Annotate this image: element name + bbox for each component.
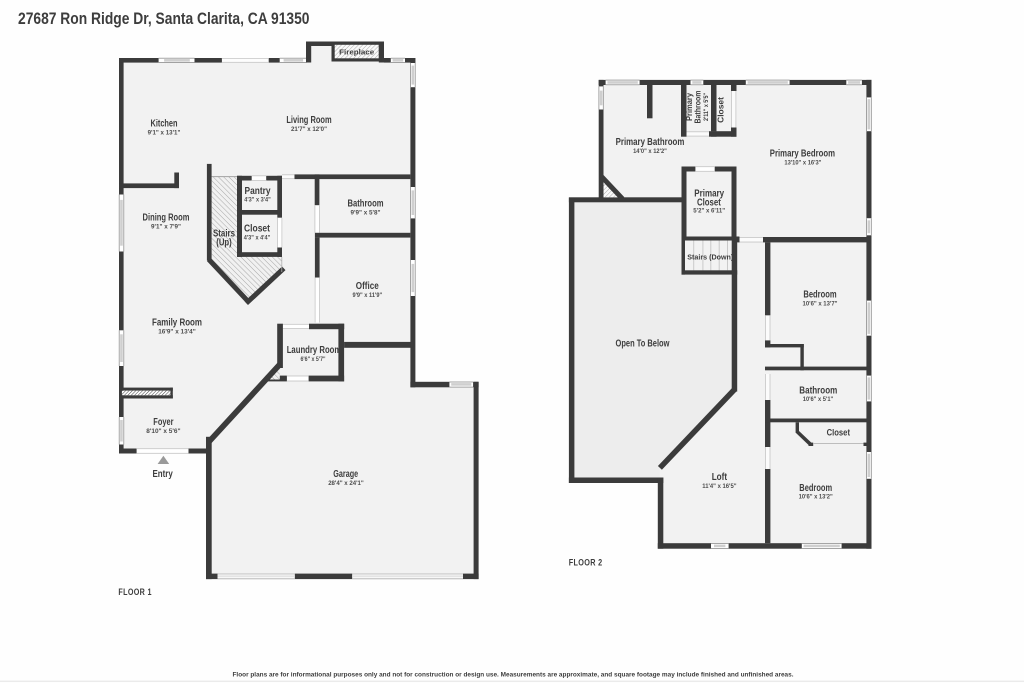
svg-text:Kitchen: Kitchen [151,119,178,130]
svg-text:11'4" x 16'5": 11'4" x 16'5" [702,483,736,490]
svg-text:Primary Bathroom: Primary Bathroom [616,137,685,148]
svg-text:9'9" x 5'8": 9'9" x 5'8" [351,209,381,216]
svg-text:FLOOR 1: FLOOR 1 [118,587,151,597]
svg-text:10'6" x 13'7": 10'6" x 13'7" [803,301,838,308]
svg-text:9'1" x 7'9": 9'1" x 7'9" [151,223,181,230]
svg-text:Garage: Garage [333,469,358,480]
svg-text:9'1" x 13'1": 9'1" x 13'1" [148,129,181,136]
svg-text:Pantry: Pantry [245,186,271,197]
svg-text:Laundry Room: Laundry Room [287,345,342,356]
svg-text:4'3" x 3'4": 4'3" x 3'4" [244,197,271,204]
svg-text:Entry: Entry [152,469,173,480]
svg-text:9'9" x 11'9": 9'9" x 11'9" [352,292,382,299]
svg-text:21'7" x 12'0": 21'7" x 12'0" [291,126,327,133]
svg-text:10'6" x 13'2": 10'6" x 13'2" [799,493,833,500]
svg-text:Bathroom: Bathroom [799,385,837,396]
svg-text:Closet: Closet [717,97,726,123]
svg-text:(Up): (Up) [216,237,232,248]
svg-text:Bedroom: Bedroom [803,290,836,301]
svg-text:6'6" x 5'7": 6'6" x 5'7" [301,356,326,363]
svg-text:Foyer: Foyer [153,417,173,428]
svg-text:Fireplace: Fireplace [339,47,374,56]
svg-text:28'4" x 24'1": 28'4" x 24'1" [328,480,364,487]
svg-text:Floor plans are for informatio: Floor plans are for informational purpos… [233,671,794,678]
svg-text:Closet: Closet [827,428,850,438]
svg-text:Loft: Loft [712,472,728,483]
svg-text:Open To Below: Open To Below [616,338,671,349]
svg-text:2'11" x 5'5": 2'11" x 5'5" [703,93,710,121]
svg-text:13'10" x 16'3": 13'10" x 16'3" [784,160,821,167]
svg-text:14'0" x 12'2": 14'0" x 12'2" [633,148,667,155]
svg-text:16'9" x 13'4": 16'9" x 13'4" [158,328,196,335]
svg-text:10'6" x 5'1": 10'6" x 5'1" [803,396,834,403]
svg-text:27687 Ron Ridge Dr, Santa Clar: 27687 Ron Ridge Dr, Santa Clarita, CA 91… [18,9,310,28]
svg-text:Closet: Closet [244,223,270,234]
svg-text:Bedroom: Bedroom [799,483,832,494]
svg-text:Family Room: Family Room [152,317,202,328]
svg-text:Living Room: Living Room [286,115,331,126]
svg-text:Bathroom: Bathroom [348,198,384,209]
svg-text:8'10" x 5'6": 8'10" x 5'6" [146,428,180,435]
svg-text:FLOOR 2: FLOOR 2 [569,558,603,568]
svg-text:5'2" x 6'11": 5'2" x 6'11" [693,208,725,215]
svg-text:Primary Bedroom: Primary Bedroom [770,149,835,160]
svg-text:Bathroom: Bathroom [694,91,703,124]
svg-text:4'3" x 4'4": 4'3" x 4'4" [244,234,271,241]
svg-text:Dining Room: Dining Room [143,212,190,223]
svg-text:Stairs (Down): Stairs (Down) [687,252,733,261]
svg-text:Office: Office [356,281,379,292]
